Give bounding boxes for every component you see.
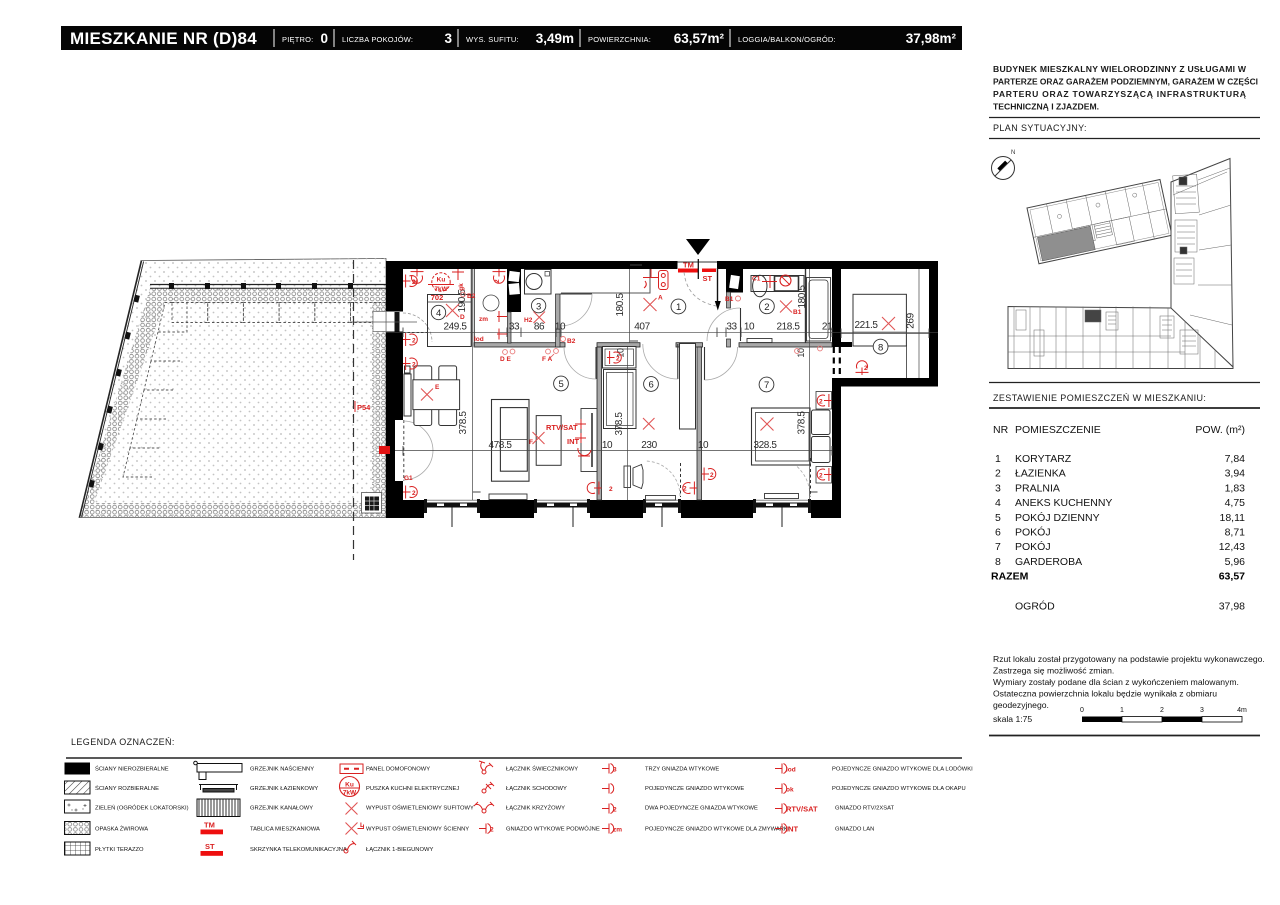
svg-text:7kW: 7kW: [434, 286, 448, 293]
svg-text:Rzut lokalu został przygotowan: Rzut lokalu został przygotowany na podst…: [993, 654, 1265, 664]
svg-text:D E: D E: [500, 356, 512, 363]
svg-text:2: 2: [412, 362, 416, 369]
svg-text:H2: H2: [524, 317, 533, 324]
svg-text:DWA POJEDYNCZE GNIAZDA WTYKOWE: DWA POJEDYNCZE GNIAZDA WTYKOWE: [645, 806, 758, 812]
svg-text:POJEDYNCZE GNIAZDO WTYKOWE DLA: POJEDYNCZE GNIAZDO WTYKOWE DLA OKAPU: [832, 786, 966, 792]
svg-text:2: 2: [819, 399, 823, 406]
svg-text:OGRÓD: OGRÓD: [1015, 600, 1055, 613]
svg-text:POMIESZCZENIE: POMIESZCZENIE: [1015, 424, 1101, 436]
svg-text:3,94: 3,94: [1225, 468, 1246, 480]
svg-text:PARTERZE ORAZ GARAŻEM PODZIEMN: PARTERZE ORAZ GARAŻEM PODZIEMNYM, GARAŻE…: [993, 76, 1258, 87]
svg-text:gk: gk: [458, 283, 465, 291]
svg-text:0: 0: [1080, 707, 1084, 714]
svg-text:2: 2: [616, 356, 620, 363]
svg-text:37,98m²: 37,98m²: [906, 31, 957, 46]
svg-text:zm: zm: [479, 316, 488, 323]
svg-text:2: 2: [494, 279, 501, 283]
svg-text:5,96: 5,96: [1225, 556, 1246, 568]
svg-text:ŚCIANY NIEROZBIERALNE: ŚCIANY NIEROZBIERALNE: [95, 765, 169, 773]
svg-text:37,98: 37,98: [1219, 601, 1245, 613]
svg-text:POKÓJ DZIENNY: POKÓJ DZIENNY: [1015, 511, 1100, 524]
svg-text:LEGENDA OZNACZEŃ:: LEGENDA OZNACZEŃ:: [71, 737, 175, 747]
svg-text:407: 407: [634, 322, 650, 333]
svg-text:2: 2: [764, 302, 769, 313]
svg-text:8: 8: [995, 556, 1001, 568]
svg-text:MIESZKANIE NR (D)84: MIESZKANIE NR (D)84: [70, 29, 257, 48]
svg-text:218.5: 218.5: [776, 322, 800, 333]
svg-text:POJEDYNCZE GNIAZDO WTYKOWE DLA: POJEDYNCZE GNIAZDO WTYKOWE DLA LODÓWKI: [832, 766, 973, 773]
svg-text:63,57: 63,57: [1219, 571, 1245, 583]
svg-text:3,49m: 3,49m: [536, 31, 574, 46]
svg-text:POJEDYNCZE GNIAZDO WTYKOWE: POJEDYNCZE GNIAZDO WTYKOWE: [645, 786, 744, 792]
svg-text:2: 2: [412, 490, 416, 497]
svg-text:TRZY GNIAZDA WTYKOWE: TRZY GNIAZDA WTYKOWE: [645, 767, 719, 773]
svg-text:RTV/SAT: RTV/SAT: [786, 805, 818, 814]
svg-text:ANEKS KUCHENNY: ANEKS KUCHENNY: [1015, 497, 1112, 509]
svg-text:lod: lod: [474, 336, 484, 343]
svg-text:2: 2: [412, 338, 416, 345]
svg-text:ŁĄCZNIK SCHODOWY: ŁĄCZNIK SCHODOWY: [506, 786, 567, 792]
svg-text:10: 10: [698, 440, 709, 451]
svg-text:10: 10: [555, 322, 566, 333]
svg-text:1: 1: [995, 453, 1001, 465]
svg-text:RAZEM: RAZEM: [991, 571, 1029, 583]
svg-text:0: 0: [320, 31, 328, 46]
svg-text:1: 1: [676, 302, 681, 313]
svg-text:180.5: 180.5: [797, 285, 808, 309]
svg-text:A: A: [658, 295, 663, 302]
svg-text:SKRZYNKA TELEKOMUNIKACYJNA: SKRZYNKA TELEKOMUNIKACYJNA: [250, 847, 347, 853]
svg-text:ŚCIANY ROZBIERALNE: ŚCIANY ROZBIERALNE: [95, 784, 159, 792]
svg-text:2: 2: [1160, 707, 1164, 714]
svg-text:B1: B1: [793, 309, 802, 316]
svg-text:ŁĄCZNIK KRZYŻOWY: ŁĄCZNIK KRZYŻOWY: [506, 805, 565, 812]
svg-text:4: 4: [995, 497, 1001, 509]
svg-text:3: 3: [444, 31, 452, 46]
svg-text:WYPUST OŚWIETLENIOWY SUFITOWY: WYPUST OŚWIETLENIOWY SUFITOWY: [366, 804, 474, 812]
svg-text:GRZEJNIK ŁAZIENKOWY: GRZEJNIK ŁAZIENKOWY: [250, 786, 318, 792]
svg-text:TM: TM: [683, 261, 694, 270]
svg-text:2: 2: [710, 472, 714, 479]
svg-text:33: 33: [509, 322, 520, 333]
svg-text:6: 6: [995, 527, 1001, 539]
svg-text:KORYTARZ: KORYTARZ: [1015, 453, 1072, 465]
svg-text:ŁĄCZNIK ŚWIECZNIKOWY: ŁĄCZNIK ŚWIECZNIKOWY: [506, 765, 578, 773]
svg-text:BUDYNEK MIESZKALNY WIELORODZIN: BUDYNEK MIESZKALNY WIELORODZINNY Z USŁUG…: [993, 64, 1247, 74]
svg-text:702: 702: [431, 293, 444, 302]
svg-text:478.5: 478.5: [488, 440, 512, 451]
svg-text:18,11: 18,11: [1220, 512, 1246, 524]
svg-text:TM: TM: [204, 821, 215, 830]
svg-text:7,84: 7,84: [1225, 453, 1246, 465]
svg-text:P54: P54: [357, 403, 371, 412]
svg-text:Ku: Ku: [345, 782, 354, 789]
svg-text:LOGGIA/BALKON/OGRÓD:: LOGGIA/BALKON/OGRÓD:: [738, 35, 836, 44]
svg-text:G1: G1: [404, 475, 413, 482]
svg-text:10: 10: [744, 322, 755, 333]
svg-text:lod: lod: [786, 767, 796, 774]
svg-text:230: 230: [641, 440, 657, 451]
svg-text:POJEDYNCZE GNIAZDO WTYKOWE DLA: POJEDYNCZE GNIAZDO WTYKOWE DLA ZMYWARKI: [645, 827, 790, 833]
svg-text:GARDEROBA: GARDEROBA: [1015, 556, 1082, 568]
svg-text:63,57m²: 63,57m²: [674, 31, 725, 46]
svg-text:E: E: [435, 384, 440, 391]
svg-text:B2: B2: [567, 338, 576, 345]
svg-text:GRZEJNIK KANAŁOWY: GRZEJNIK KANAŁOWY: [250, 806, 313, 812]
svg-text:4,75: 4,75: [1225, 497, 1246, 509]
svg-text:GRZEJNIK NAŚCIENNY: GRZEJNIK NAŚCIENNY: [250, 765, 314, 773]
svg-text:ZESTAWIENIE POMIESZCZEŃ W MIES: ZESTAWIENIE POMIESZCZEŃ W MIESZKANIU:: [993, 393, 1206, 403]
svg-text:GNIAZDO LAN: GNIAZDO LAN: [835, 827, 874, 833]
svg-text:Wymiary zostały podane dla ści: Wymiary zostały podane dla ścian z wykoń…: [993, 677, 1239, 687]
svg-text:D: D: [460, 314, 465, 321]
svg-text:8: 8: [878, 342, 883, 353]
svg-text:328.5: 328.5: [753, 440, 777, 451]
svg-text:L: L: [360, 822, 364, 829]
svg-text:5: 5: [995, 512, 1001, 524]
svg-text:378.5: 378.5: [458, 411, 469, 435]
svg-text:4m: 4m: [1237, 707, 1247, 714]
svg-text:ok: ok: [786, 787, 794, 794]
svg-text:1: 1: [1120, 707, 1124, 714]
svg-text:LICZBA POKOJÓW:: LICZBA POKOJÓW:: [342, 35, 413, 44]
svg-text:10: 10: [602, 440, 613, 451]
svg-text:Ostateczna powierzchnia lokalu: Ostateczna powierzchnia lokalu będzie wy…: [993, 689, 1217, 699]
svg-text:TECHNICZNĄ I ZJAZDEM.: TECHNICZNĄ I ZJAZDEM.: [993, 102, 1099, 112]
svg-text:7: 7: [995, 541, 1001, 553]
svg-text:21: 21: [822, 322, 833, 333]
svg-text:221.5: 221.5: [854, 320, 878, 331]
svg-text:3: 3: [1200, 707, 1204, 714]
svg-text:378.5: 378.5: [797, 411, 808, 435]
svg-text:3: 3: [995, 482, 1001, 494]
svg-text:1,83: 1,83: [1225, 482, 1246, 494]
svg-text:PŁYTKI TERAZZO: PŁYTKI TERAZZO: [95, 847, 144, 853]
svg-text:33: 33: [726, 322, 737, 333]
svg-text:PUSZKA KUCHNI ELEKTRYCZNEJ: PUSZKA KUCHNI ELEKTRYCZNEJ: [366, 786, 459, 792]
svg-text:PIĘTRO:: PIĘTRO:: [282, 35, 313, 44]
svg-text:GNIAZDO RTV/2XSAT: GNIAZDO RTV/2XSAT: [835, 806, 895, 812]
svg-text:180.5: 180.5: [615, 293, 626, 317]
svg-text:2: 2: [995, 468, 1001, 480]
svg-text:PANEL DOMOFONOWY: PANEL DOMOFONOWY: [366, 767, 430, 773]
svg-text:ZIELEŃ (OGRÓDEK LOKATORSKI): ZIELEŃ (OGRÓDEK LOKATORSKI): [95, 805, 189, 812]
svg-text:POW. (m²): POW. (m²): [1195, 424, 1245, 436]
svg-text:zm: zm: [613, 827, 622, 834]
svg-text:WYS. SUFITU:: WYS. SUFITU:: [466, 35, 519, 44]
svg-text:86: 86: [534, 322, 545, 333]
svg-text:2: 2: [412, 279, 416, 286]
svg-text:Zastrzega się możliwość zmian.: Zastrzega się możliwość zmian.: [993, 666, 1114, 676]
svg-text:378.5: 378.5: [614, 412, 625, 436]
svg-text:WYPUST OŚWIETLENIOWY ŚCIENNY: WYPUST OŚWIETLENIOWY ŚCIENNY: [366, 825, 469, 833]
svg-text:3: 3: [613, 767, 617, 774]
svg-text:8,71: 8,71: [1225, 527, 1246, 539]
svg-text:NR: NR: [993, 424, 1009, 436]
svg-text:N: N: [1011, 150, 1015, 156]
svg-text:2: 2: [819, 473, 823, 480]
svg-text:skala 1:75: skala 1:75: [993, 714, 1032, 724]
svg-text:269: 269: [906, 312, 917, 328]
svg-text:ST: ST: [703, 274, 713, 283]
svg-text:B1: B1: [725, 296, 734, 303]
svg-text:2: 2: [864, 365, 868, 372]
svg-text:2: 2: [490, 827, 494, 834]
svg-text:POKÓJ: POKÓJ: [1015, 540, 1051, 553]
svg-text:6: 6: [649, 380, 654, 391]
svg-text:3: 3: [536, 301, 541, 312]
svg-text:RTV/SAT: RTV/SAT: [546, 423, 578, 432]
svg-text:2: 2: [613, 807, 617, 814]
svg-text:ŁĄCZNIK 1-BIEGUNOWY: ŁĄCZNIK 1-BIEGUNOWY: [366, 847, 433, 853]
svg-text:INT: INT: [786, 825, 799, 834]
svg-text:7kW: 7kW: [343, 790, 357, 797]
svg-text:7: 7: [764, 380, 769, 391]
svg-text:ŁAZIENKA: ŁAZIENKA: [1015, 468, 1066, 480]
svg-text:geodezyjnego.: geodezyjnego.: [993, 700, 1049, 710]
svg-text:GNIAZDO WTYKOWE PODWÓJNE: GNIAZDO WTYKOWE PODWÓJNE: [506, 826, 600, 833]
svg-text:Ku: Ku: [437, 277, 446, 284]
svg-text:12,43: 12,43: [1219, 541, 1245, 553]
svg-text:5: 5: [559, 379, 564, 390]
svg-text:F: F: [529, 439, 533, 446]
svg-text:POKÓJ: POKÓJ: [1015, 526, 1051, 539]
svg-text:PARTERU ORAZ TOWARZYSZĄCĄ INFR: PARTERU ORAZ TOWARZYSZĄCĄ INFRASTRUKTURĄ: [993, 89, 1246, 99]
svg-text:2: 2: [683, 486, 687, 493]
svg-text:OPASKA ŻWIROWA: OPASKA ŻWIROWA: [95, 826, 148, 833]
svg-text:PLAN SYTUACYJNY:: PLAN SYTUACYJNY:: [993, 123, 1087, 133]
svg-text:249.5: 249.5: [443, 322, 467, 333]
svg-text:4: 4: [436, 308, 441, 319]
svg-text:C1: C1: [752, 276, 761, 283]
svg-text:2: 2: [609, 486, 613, 493]
svg-text:B2: B2: [467, 293, 476, 300]
svg-text:TABLICA MIESZKANIOWA: TABLICA MIESZKANIOWA: [250, 827, 320, 833]
svg-text:PRALNIA: PRALNIA: [1015, 482, 1060, 494]
svg-text:10: 10: [796, 348, 806, 358]
svg-text:POWIERZCHNIA:: POWIERZCHNIA:: [588, 35, 651, 44]
svg-text:ST: ST: [205, 842, 215, 851]
